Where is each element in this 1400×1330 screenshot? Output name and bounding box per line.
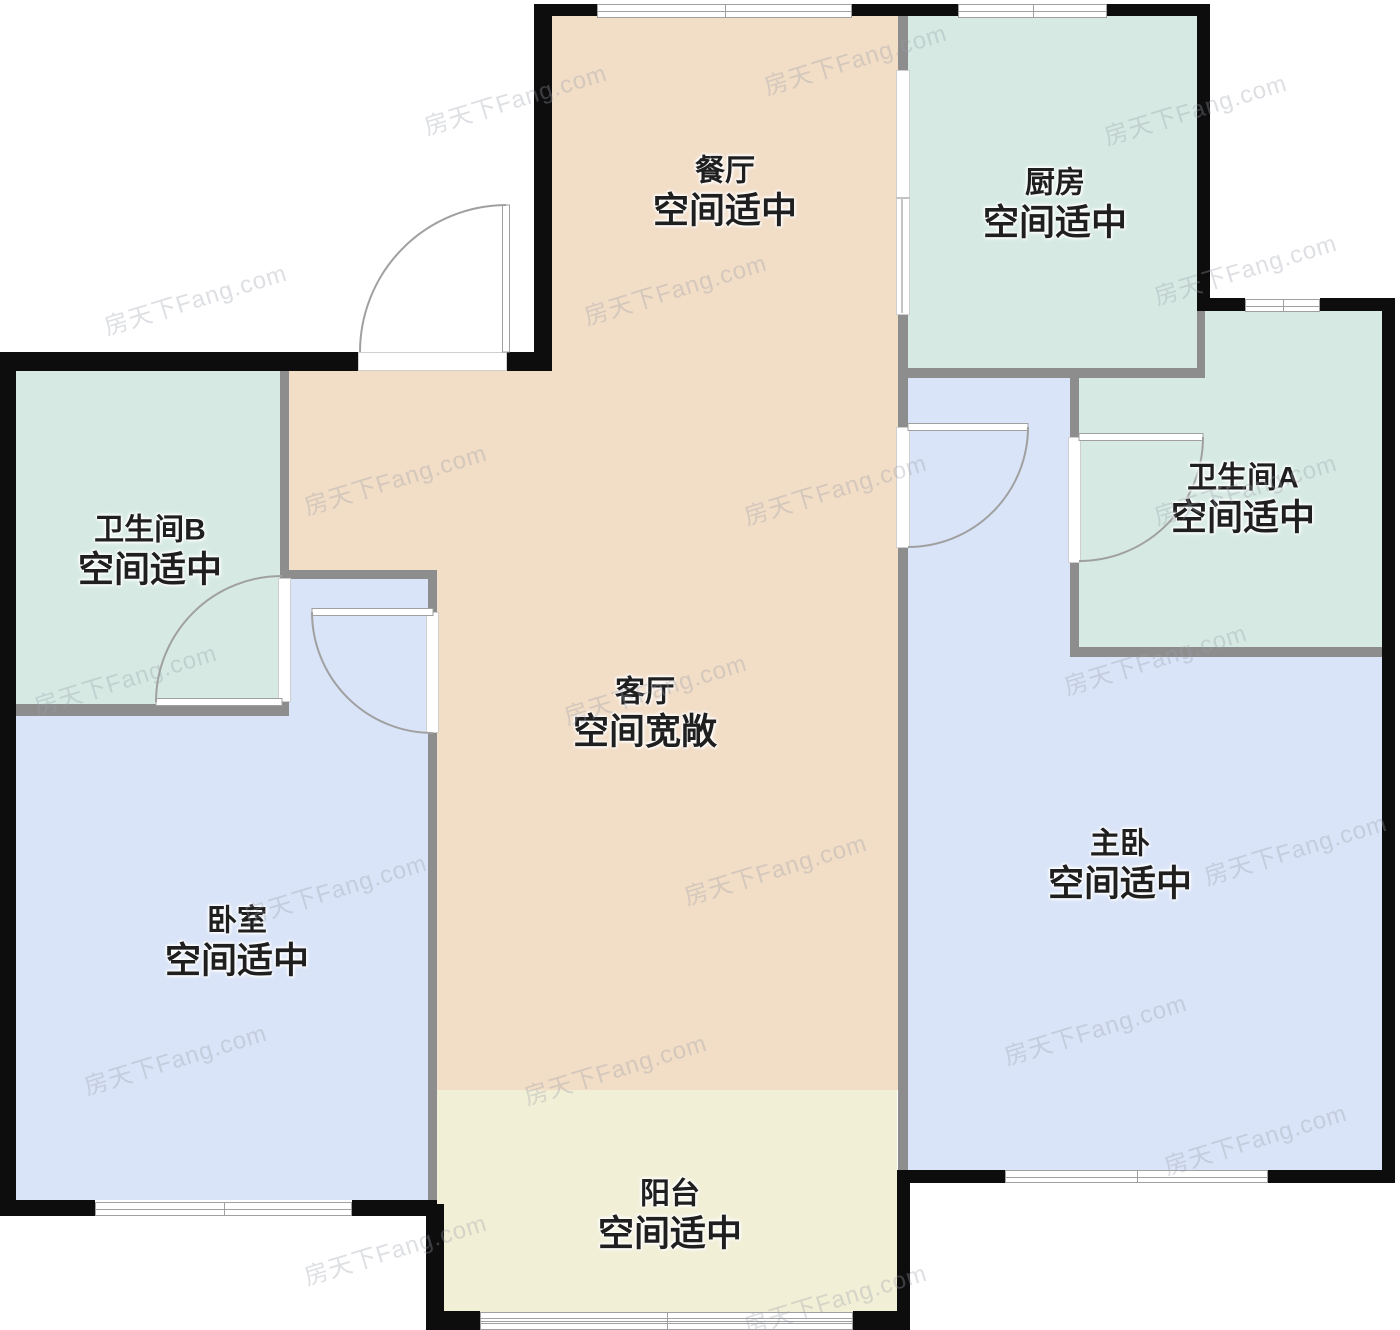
wall-bath-a-left-upper xyxy=(1070,378,1079,437)
label-kitchen: 厨房 空间适中 xyxy=(983,165,1127,244)
wall-entry-jamb xyxy=(507,352,552,371)
wall-master-bottom-segment xyxy=(1268,1170,1395,1183)
window-balcony-bottom xyxy=(480,1312,853,1330)
room-note: 空间适中 xyxy=(598,1213,742,1255)
label-bath-b: 卫生间B 空间适中 xyxy=(78,512,222,591)
room-name: 卫生间A xyxy=(1171,460,1315,497)
window-bath-a-top xyxy=(1245,299,1320,312)
bath-a-door-opening xyxy=(1068,437,1081,563)
room-name: 卧室 xyxy=(165,903,309,940)
entry-door-leaf xyxy=(503,205,510,352)
label-master: 主卧 空间适中 xyxy=(1048,826,1192,905)
wall-bath-a-bottom xyxy=(1070,647,1388,657)
window-mullion-line xyxy=(481,1323,852,1324)
watermark: 房天下Fang.com xyxy=(99,253,291,342)
wall-kitchen-right xyxy=(1197,4,1210,311)
wall-bedroom-right-lower xyxy=(428,733,437,1204)
room-name: 阳台 xyxy=(598,1176,742,1213)
room-living-area xyxy=(437,578,898,1090)
wall-entry-segment xyxy=(0,352,358,371)
wall-bedroom-bottom-segment xyxy=(352,1200,437,1216)
room-name: 主卧 xyxy=(1048,826,1192,863)
room-note: 空间适中 xyxy=(653,190,797,232)
entry-door-opening xyxy=(358,352,507,371)
label-balcony: 阳台 空间适中 xyxy=(598,1176,742,1255)
master-hall-door-opening xyxy=(896,427,910,548)
entry-door-arc xyxy=(360,205,506,352)
room-note: 空间适中 xyxy=(165,940,309,982)
wall-top-segment xyxy=(534,4,597,16)
label-bedroom: 卧室 空间适中 xyxy=(165,903,309,982)
wall-left-exterior xyxy=(0,352,16,1216)
wall-bath-a-left-lower xyxy=(1070,563,1079,657)
wall-balcony-bottom-segment xyxy=(426,1311,480,1330)
room-note: 空间适中 xyxy=(1048,863,1192,905)
label-dining: 餐厅 空间适中 xyxy=(653,153,797,232)
room-note: 空间适中 xyxy=(78,549,222,591)
room-note: 空间适中 xyxy=(983,202,1127,244)
room-name: 餐厅 xyxy=(653,153,797,190)
wall-bedroom-right-upper xyxy=(428,570,437,612)
window-master-bottom xyxy=(1005,1170,1268,1183)
room-name: 厨房 xyxy=(983,165,1127,202)
room-bedroom-vestibule xyxy=(289,578,428,716)
kitchen-passage-opening xyxy=(896,70,910,315)
bath-b-door-opening xyxy=(278,578,291,702)
room-dining-extension xyxy=(289,371,898,578)
wall-top-segment xyxy=(852,4,958,16)
window-kitchen-top xyxy=(958,4,1107,18)
label-living: 客厅 空间宽敞 xyxy=(573,674,717,753)
room-name: 卫生间B xyxy=(78,512,222,549)
label-bath-a: 卫生间A 空间适中 xyxy=(1171,460,1315,539)
wall-bath-a-top-segment xyxy=(1210,298,1245,311)
wall-balcony-right xyxy=(897,1170,910,1330)
wall-bath-b-bottom xyxy=(12,704,289,716)
room-note: 空间适中 xyxy=(1171,497,1315,539)
room-master-hall xyxy=(908,378,1070,657)
window-mullion-line xyxy=(481,1318,852,1319)
kitchen-passage-slider xyxy=(901,199,903,313)
wall-kitchen-bottom xyxy=(898,368,1205,378)
wall-vestibule-top xyxy=(280,570,437,579)
room-note: 空间宽敞 xyxy=(573,711,717,753)
wall-master-bottom-segment xyxy=(897,1170,1005,1183)
wall-top-segment xyxy=(1107,4,1210,16)
kitchen-passage-divider xyxy=(896,197,910,199)
wall-right-exterior xyxy=(1382,298,1395,1183)
wall-kitchen-right-stub xyxy=(1197,300,1205,378)
bedroom-door-opening xyxy=(426,612,439,733)
wall-spine-upper xyxy=(898,16,908,70)
window-dining-top xyxy=(597,4,852,18)
room-name: 客厅 xyxy=(573,674,717,711)
wall-spine-lower xyxy=(898,548,908,1172)
room-master-area xyxy=(908,657,1382,1170)
window-bedroom-bottom xyxy=(95,1202,352,1216)
floor-plan: 餐厅 空间适中 厨房 空间适中 卫生间A 空间适中 卫生间B 空间适中 客厅 空… xyxy=(0,0,1400,1330)
wall-bath-b-right-upper xyxy=(280,360,289,578)
wall-bedroom-bottom-segment xyxy=(12,1200,95,1216)
wall-dining-left xyxy=(534,4,552,370)
